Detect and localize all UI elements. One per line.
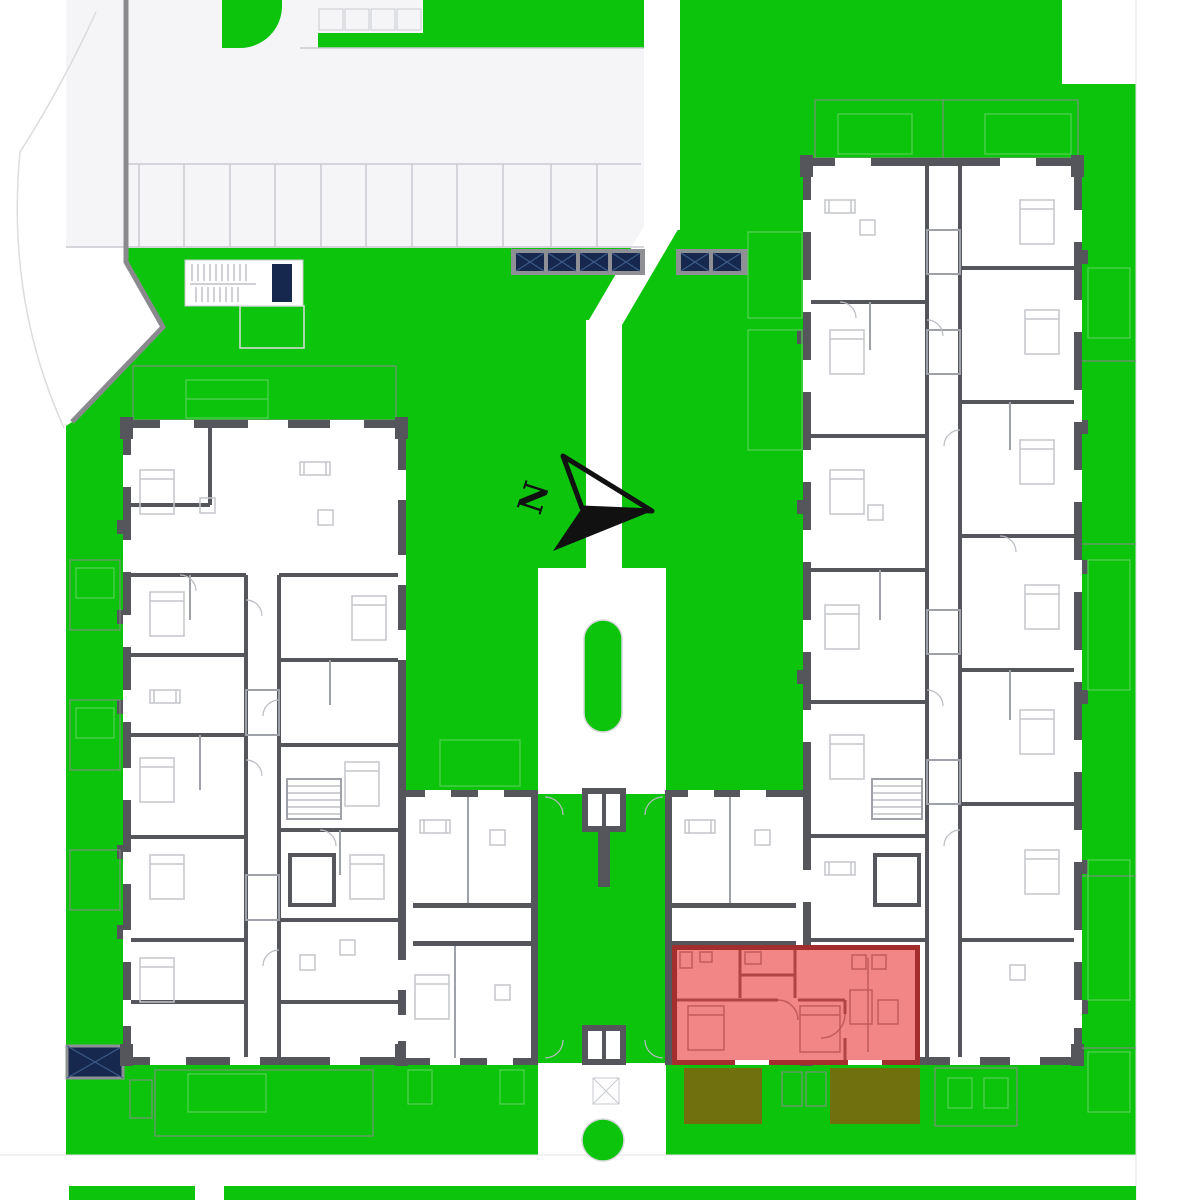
site-plan: N — [0, 0, 1200, 1200]
right-building-body — [803, 158, 1082, 1065]
highlighted-apartment[interactable] — [672, 945, 920, 1065]
courtyard-island — [584, 620, 622, 732]
bottom-green-strips — [69, 1186, 1136, 1200]
left-building-body — [123, 420, 406, 1065]
green-strip-bottom-left — [69, 1186, 195, 1200]
right-building — [797, 100, 1088, 1066]
right-elevator — [875, 855, 919, 905]
site-plan-canvas: N — [0, 0, 1200, 1200]
left-elevator — [290, 855, 334, 905]
strip-right — [1136, 0, 1200, 1200]
terrace-right[interactable] — [830, 1068, 920, 1124]
elevator-x-box — [593, 1078, 619, 1104]
stair-core — [272, 264, 292, 302]
margin-left — [0, 0, 66, 1200]
green-patch-top-middle — [423, 0, 644, 48]
elevator-core-bottom — [582, 1025, 626, 1065]
green-strip-bottom-right — [224, 1186, 1136, 1200]
green-strip-under-stalls — [318, 33, 423, 48]
tree-circle — [582, 1119, 624, 1161]
left-building — [117, 366, 408, 1066]
walkway-top — [644, 0, 680, 230]
terrace-left[interactable] — [684, 1068, 762, 1124]
center-left-block — [406, 790, 538, 1065]
